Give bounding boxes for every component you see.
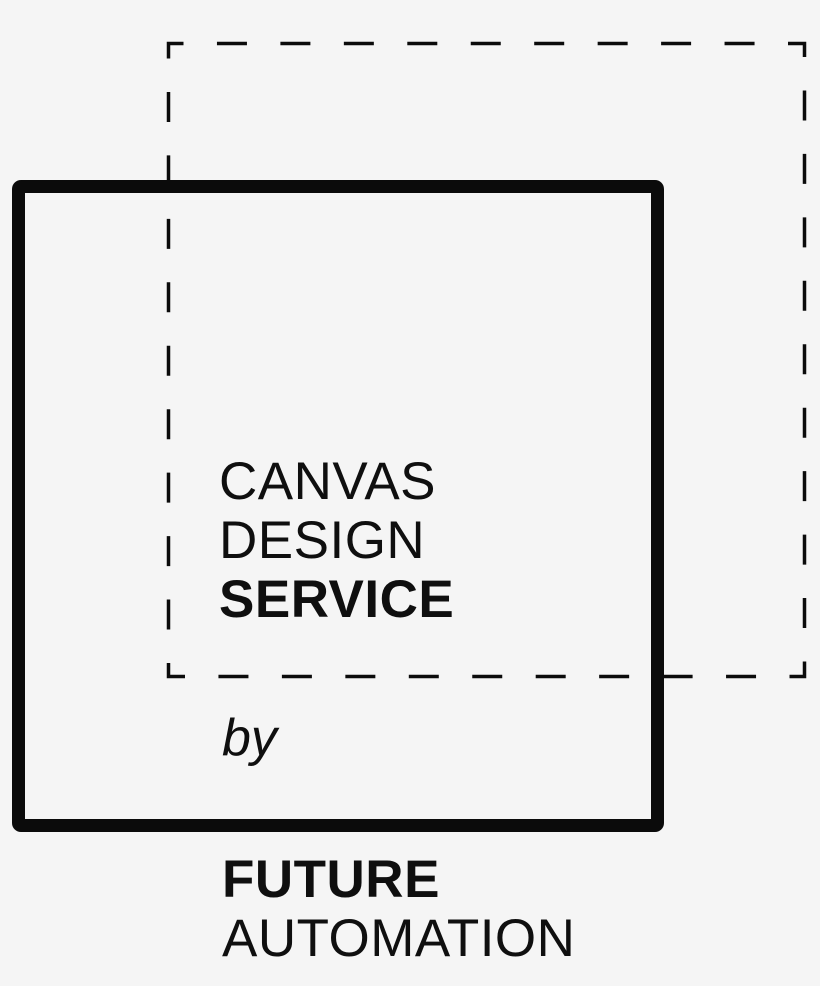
title-line-canvas: CANVAS: [219, 452, 454, 511]
byline-text: by: [222, 709, 277, 768]
brand-name: FUTURE AUTOMATION: [222, 850, 575, 968]
title-line-design: DESIGN: [219, 511, 454, 570]
brand-line-automation: AUTOMATION: [222, 909, 575, 968]
title-line-service: SERVICE: [219, 570, 454, 629]
brand-line-future: FUTURE: [222, 850, 575, 909]
logo-canvas: CANVAS DESIGN SERVICE by FUTURE AUTOMATI…: [0, 0, 820, 986]
logo-title: CANVAS DESIGN SERVICE: [219, 452, 454, 629]
